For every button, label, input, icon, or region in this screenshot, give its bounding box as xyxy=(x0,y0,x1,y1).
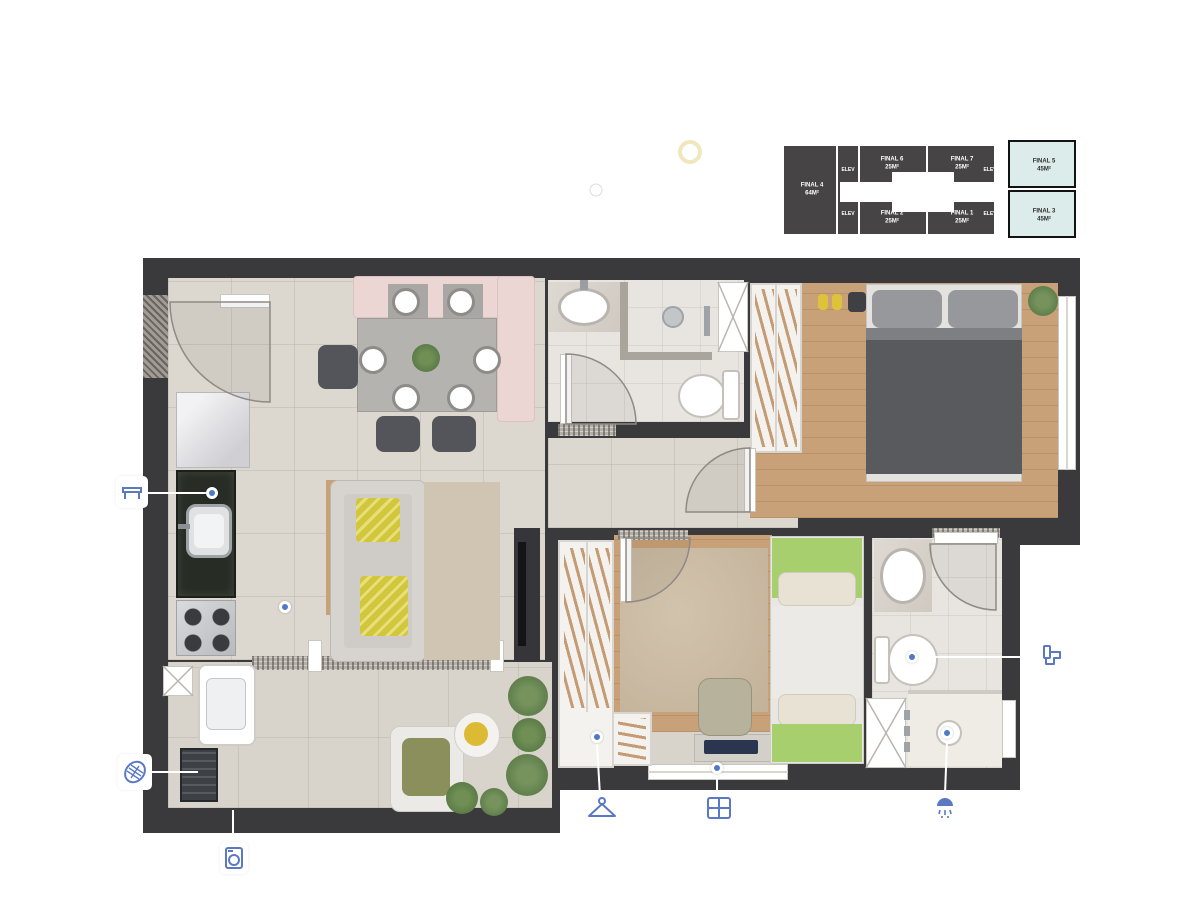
window-callout xyxy=(704,794,734,822)
shower-callout xyxy=(930,792,960,824)
closet-callout xyxy=(584,794,618,824)
window-label: JANELA xyxy=(742,800,797,815)
anchor-dot-shower xyxy=(941,727,953,739)
door-arc xyxy=(626,538,690,602)
washing-machine-icon xyxy=(224,846,244,870)
counter-label: BANCADA xyxy=(39,486,108,501)
laundry-callout xyxy=(220,842,248,874)
shower-label: DUCHA xyxy=(966,798,1015,813)
hanger-icon xyxy=(585,796,617,822)
closet-label: CLOSET xyxy=(626,800,682,815)
door-arc xyxy=(566,354,636,424)
toilet-icon xyxy=(1040,644,1066,672)
shower-icon xyxy=(932,794,958,822)
annotation-overlay xyxy=(0,0,1200,900)
grill-callout xyxy=(118,754,152,790)
counter-icon xyxy=(121,481,143,503)
counter-callout xyxy=(116,476,148,508)
door-arc xyxy=(930,544,996,610)
door-arc xyxy=(686,448,750,512)
door-arc xyxy=(170,302,270,402)
grill-icon xyxy=(122,759,148,785)
laundry-label: LAVANDERIA xyxy=(256,850,344,865)
window-grid-icon xyxy=(706,796,732,820)
grill-label: CHURRASQUEIRA xyxy=(0,764,114,779)
anchor-dot-closet xyxy=(591,731,603,743)
toilet-callout xyxy=(1038,642,1068,674)
anchor-dot-window xyxy=(711,762,723,774)
anchor-dot-living xyxy=(279,601,291,613)
toilet-label: BANHEIRO xyxy=(1072,650,1145,665)
anchor-dot-counter xyxy=(206,487,218,499)
anchor-dot-toilet xyxy=(906,651,918,663)
floorplan-page: { "header": { "area_title": "45,87 M²", … xyxy=(0,0,1200,900)
